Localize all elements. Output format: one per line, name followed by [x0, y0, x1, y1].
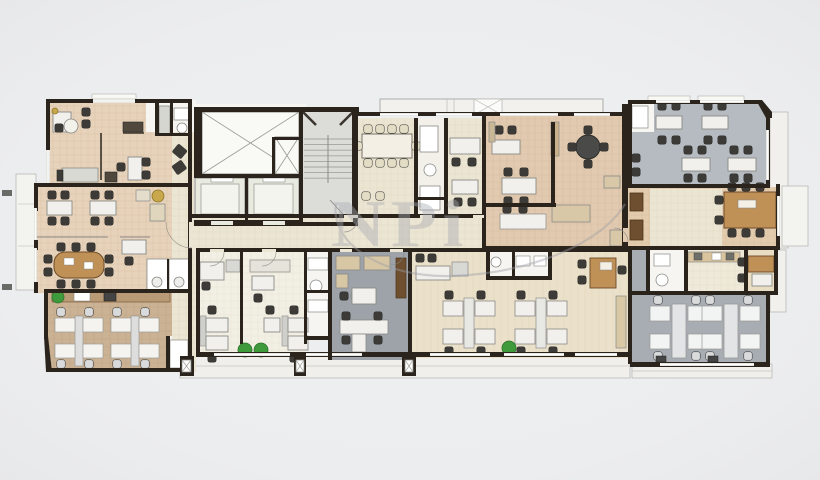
svg-text:NPi: NPi: [331, 187, 469, 261]
